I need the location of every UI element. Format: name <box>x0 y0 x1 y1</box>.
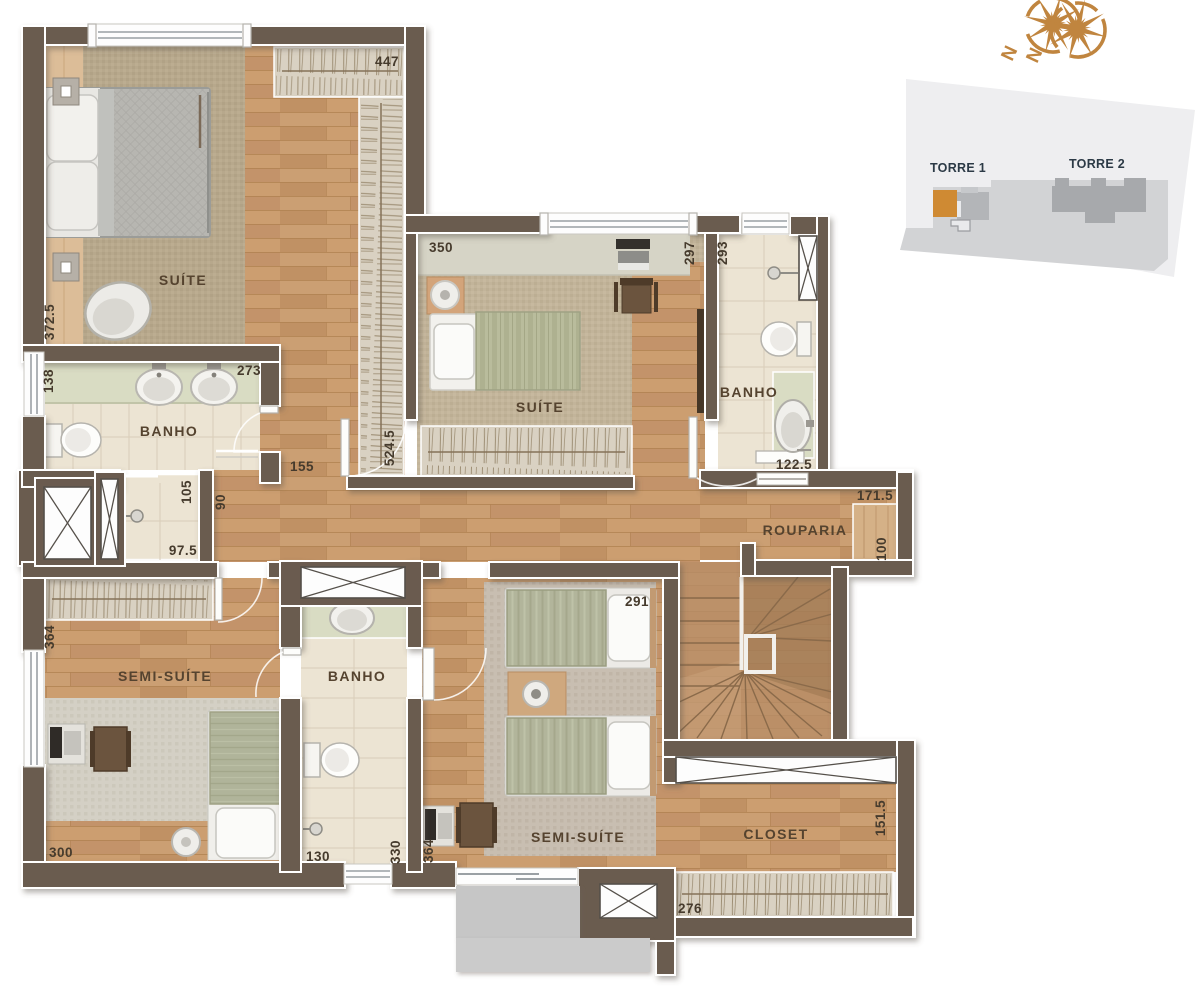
svg-text:276: 276 <box>678 901 702 916</box>
svg-text:171.5: 171.5 <box>857 488 893 503</box>
svg-text:100: 100 <box>874 537 889 561</box>
svg-text:364: 364 <box>42 625 57 649</box>
svg-text:151.5: 151.5 <box>873 800 888 836</box>
svg-text:447: 447 <box>375 54 399 69</box>
svg-text:138: 138 <box>41 369 56 393</box>
svg-text:122.5: 122.5 <box>776 457 812 472</box>
svg-text:273: 273 <box>237 363 261 378</box>
svg-text:BANHO: BANHO <box>328 668 386 684</box>
svg-text:SEMI-SUÍTE: SEMI-SUÍTE <box>531 829 625 845</box>
svg-text:524.5: 524.5 <box>382 430 397 466</box>
svg-text:TORRE 1: TORRE 1 <box>930 161 986 175</box>
svg-text:SUÍTE: SUÍTE <box>159 272 207 288</box>
svg-text:293: 293 <box>715 241 730 265</box>
svg-text:90: 90 <box>213 494 228 510</box>
svg-text:ROUPARIA: ROUPARIA <box>763 522 848 538</box>
svg-text:SEMI-SUÍTE: SEMI-SUÍTE <box>118 668 212 684</box>
svg-text:300: 300 <box>49 845 73 860</box>
svg-text:BANHO: BANHO <box>720 384 778 400</box>
svg-text:372.5: 372.5 <box>42 304 57 340</box>
svg-text:130: 130 <box>306 849 330 864</box>
svg-text:BANHO: BANHO <box>140 423 198 439</box>
svg-text:TORRE 2: TORRE 2 <box>1069 157 1125 171</box>
svg-text:97.5: 97.5 <box>169 543 197 558</box>
svg-text:297: 297 <box>682 241 697 265</box>
svg-text:364: 364 <box>421 839 436 863</box>
svg-text:105: 105 <box>179 480 194 504</box>
svg-text:SUÍTE: SUÍTE <box>516 399 564 415</box>
svg-text:291: 291 <box>625 594 649 609</box>
svg-text:330: 330 <box>388 840 403 864</box>
svg-text:350: 350 <box>429 240 453 255</box>
svg-text:155: 155 <box>290 459 314 474</box>
svg-text:CLOSET: CLOSET <box>743 826 808 842</box>
